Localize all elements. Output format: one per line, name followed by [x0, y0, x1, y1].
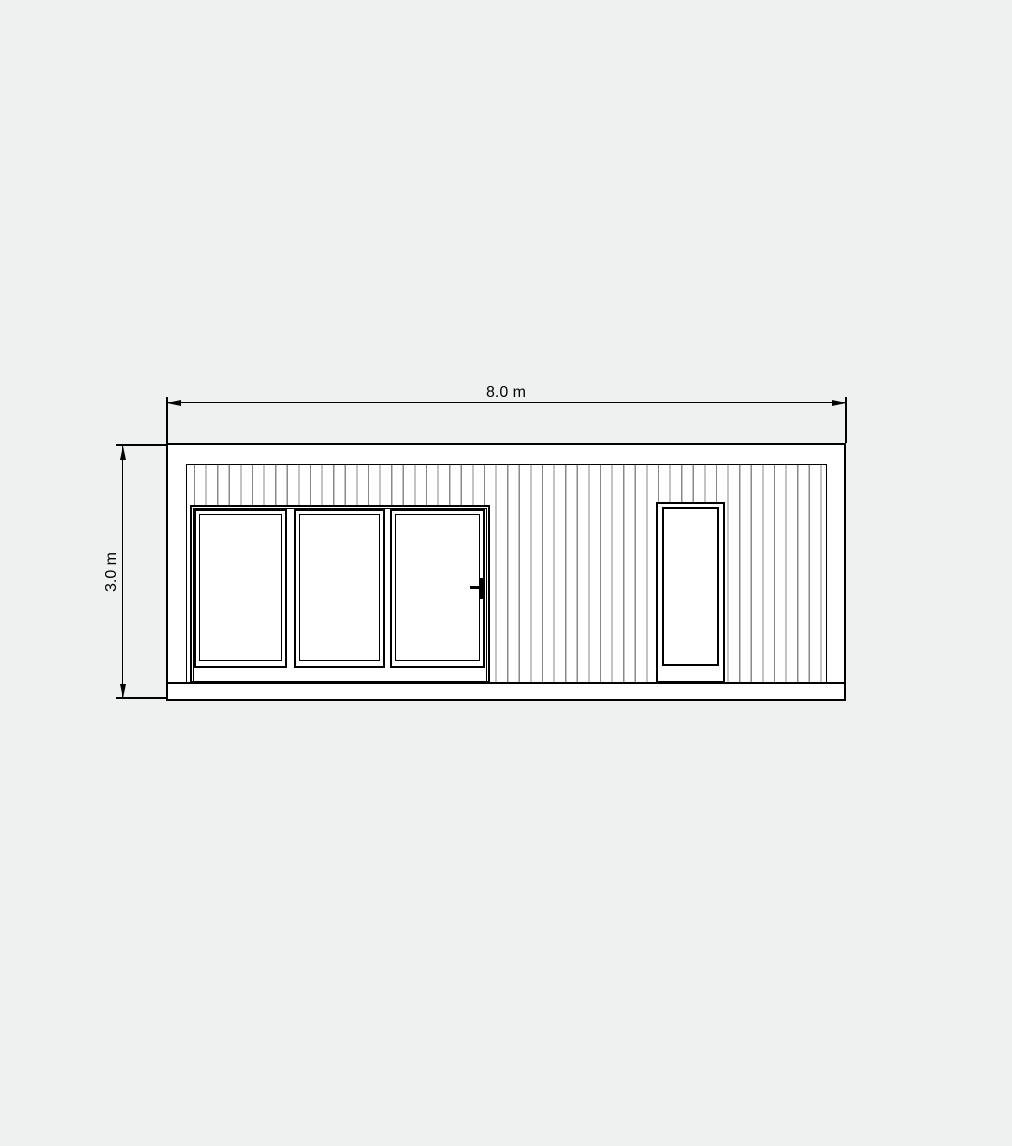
- door-handle-bar: [470, 586, 481, 589]
- dimension-height-line: [122, 446, 123, 698]
- dimension-width-line: [167, 402, 846, 403]
- sliding-door-unit: [190, 505, 490, 683]
- dimension-width-label: 8.0 m: [446, 384, 566, 402]
- floor-plinth-line: [166, 682, 846, 684]
- entry-door: [656, 502, 725, 683]
- glass-pane-2: [299, 514, 380, 661]
- glass-door-panel-1: [194, 509, 287, 668]
- dimension-arrow-left-icon: [167, 400, 181, 406]
- dimension-arrow-right-icon: [832, 400, 846, 406]
- glass-door-panel-2: [294, 509, 385, 668]
- dimension-height-label: 3.0 m: [103, 540, 121, 604]
- glass-pane-1: [199, 514, 282, 661]
- drawing-canvas: 8.0 m 3.0 m: [0, 0, 1012, 1146]
- entry-door-panel: [662, 507, 719, 666]
- dimension-arrow-down-icon: [120, 684, 126, 698]
- dimension-arrow-up-icon: [120, 446, 126, 460]
- glass-pane-3: [395, 514, 480, 661]
